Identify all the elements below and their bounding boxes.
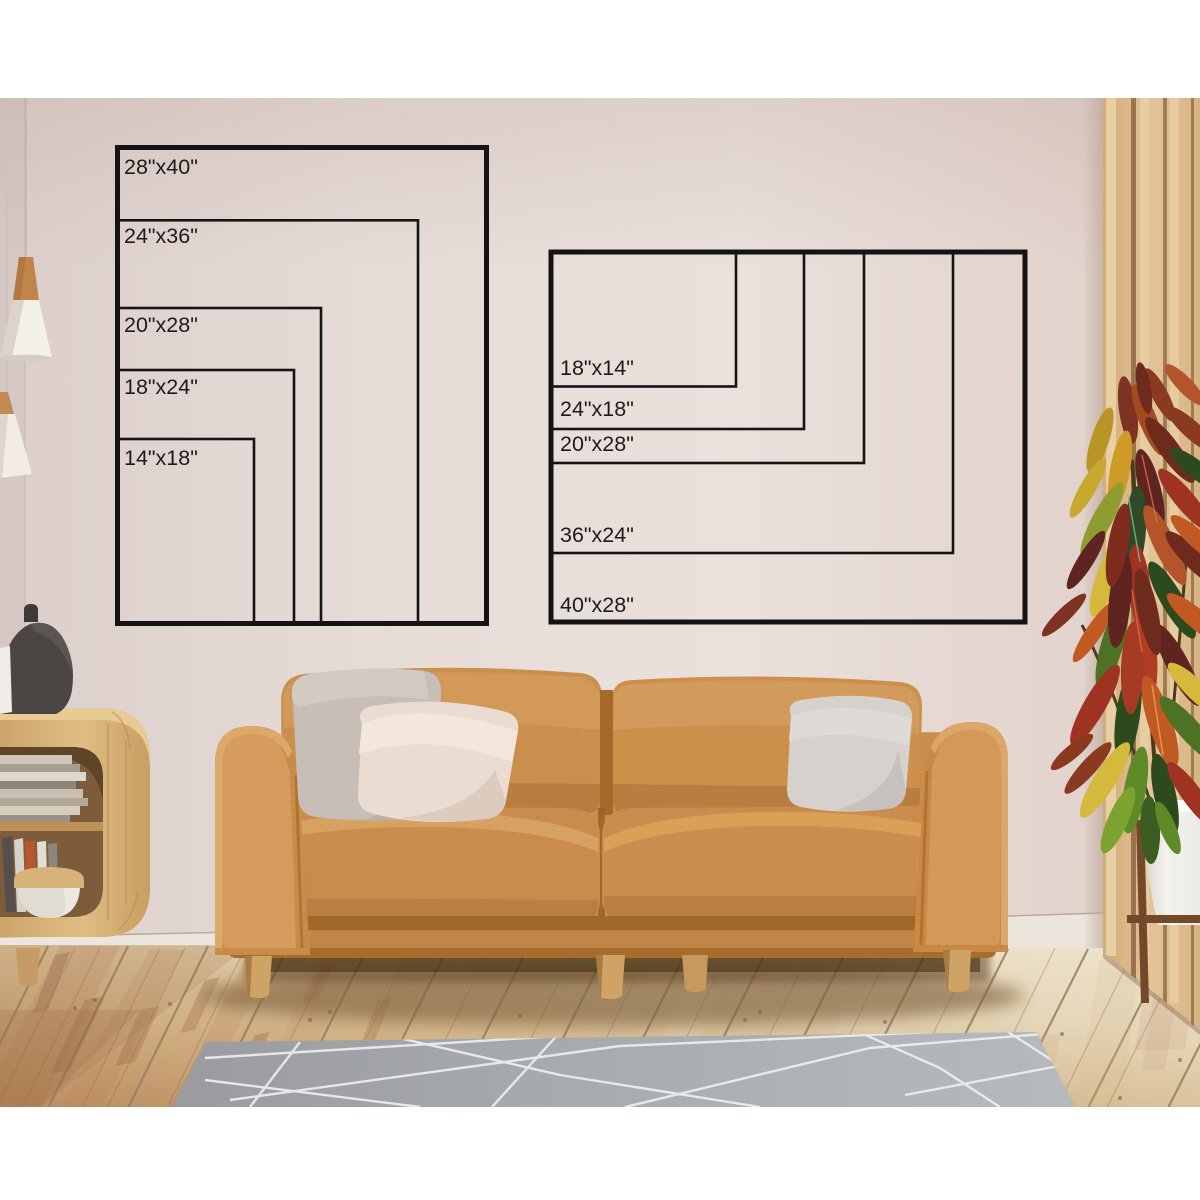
svg-text:24"x18": 24"x18" [560,397,634,421]
svg-text:40"x28": 40"x28" [560,593,634,617]
svg-text:14"x18": 14"x18" [124,446,198,470]
svg-text:28"x40": 28"x40" [124,155,198,179]
svg-text:20"x28": 20"x28" [560,432,634,456]
svg-text:36"x24": 36"x24" [560,523,634,547]
svg-text:18"x24": 18"x24" [124,375,198,399]
svg-text:18"x14": 18"x14" [560,356,634,380]
svg-text:20"x28": 20"x28" [124,313,198,337]
svg-text:24"x36": 24"x36" [124,224,198,248]
